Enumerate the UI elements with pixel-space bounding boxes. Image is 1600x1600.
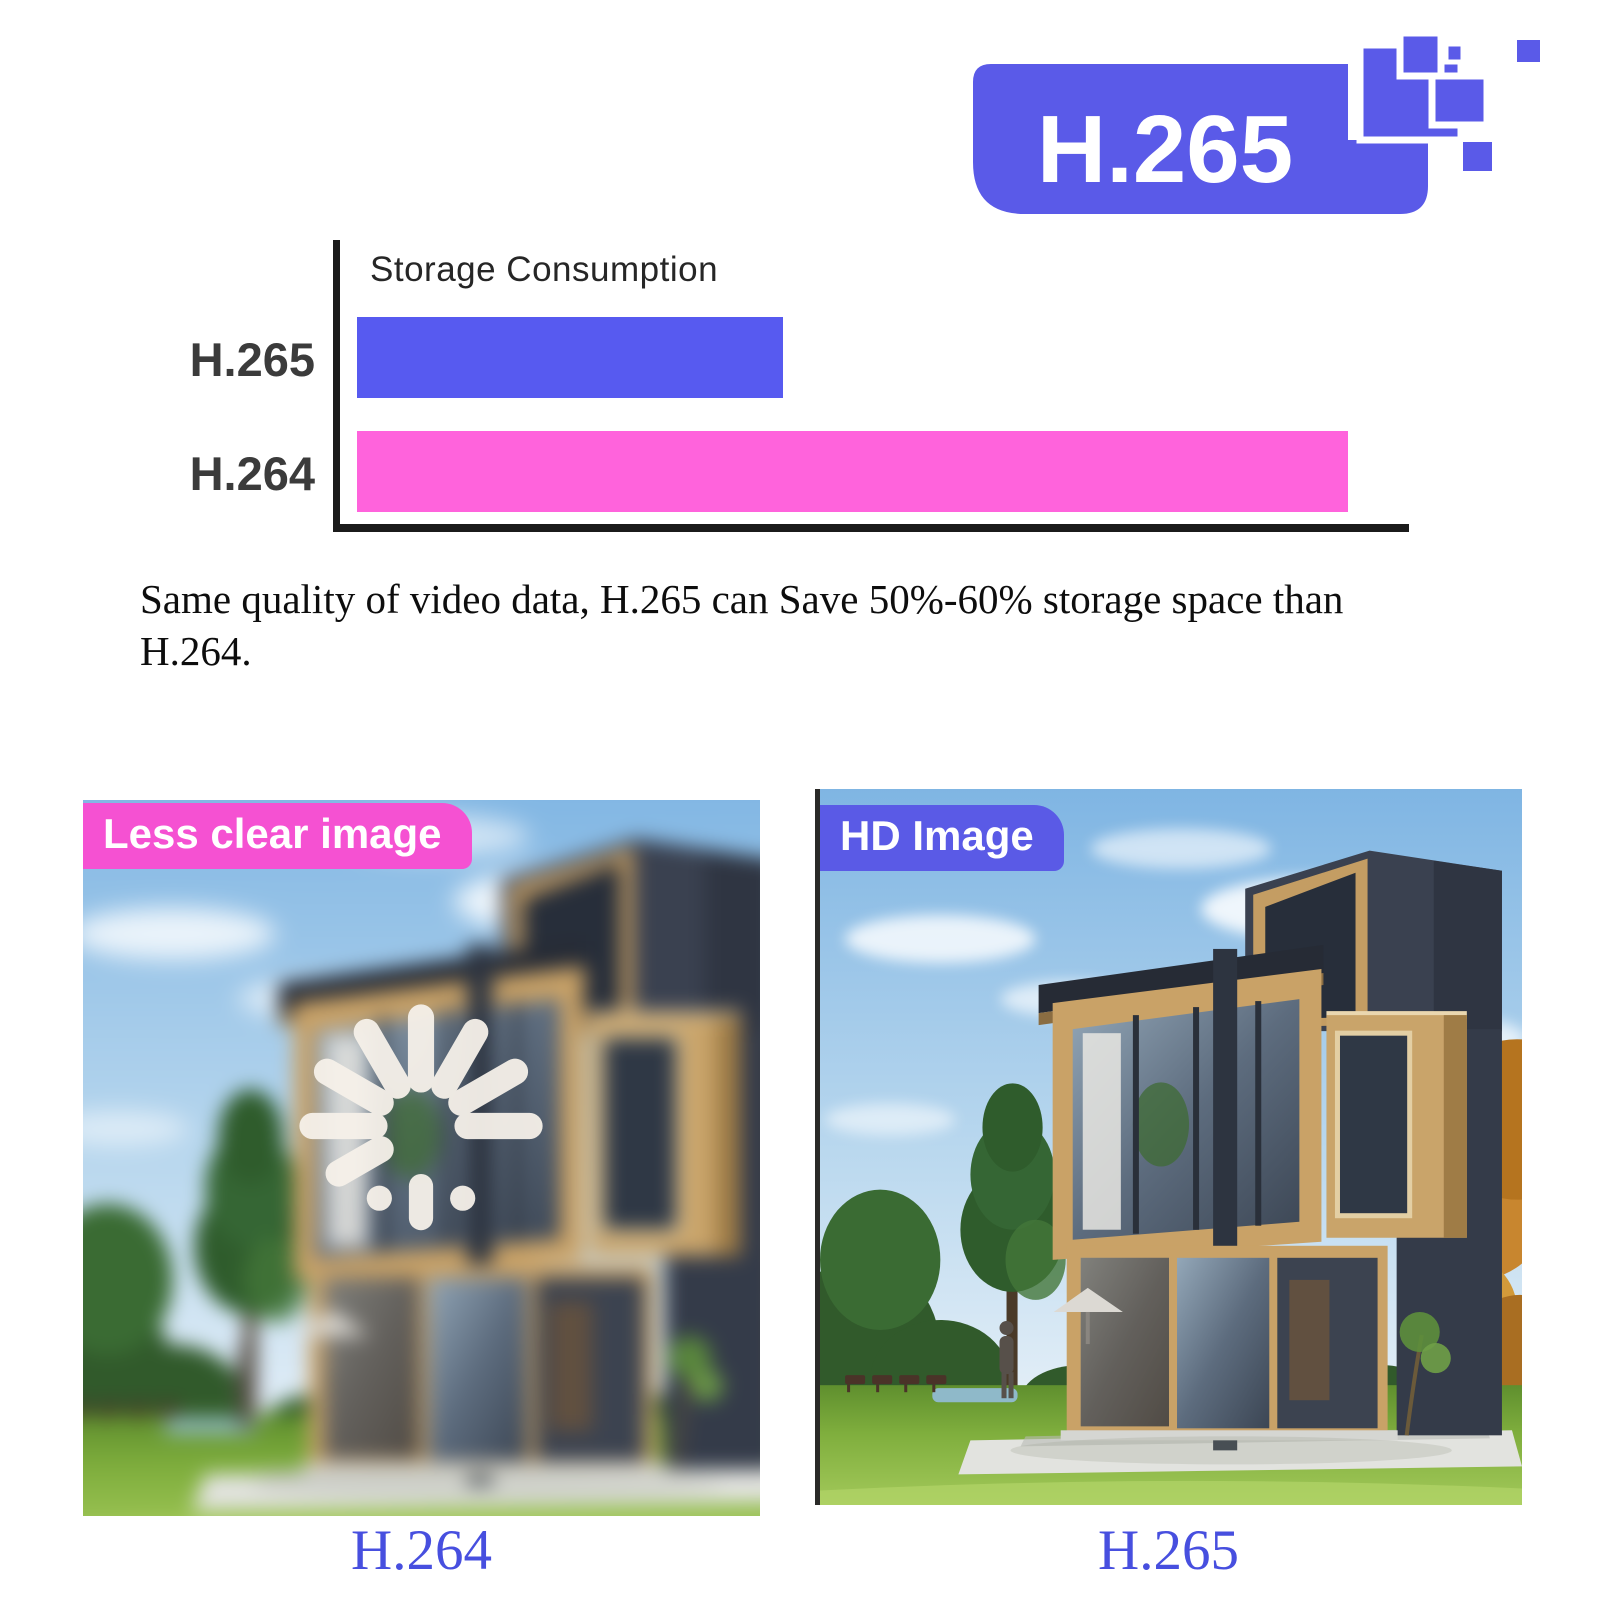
page: H.265 Storage Consumption H.265 H.264 Sa… bbox=[0, 0, 1600, 1600]
pixel-blocks-icon: H.265 bbox=[965, 30, 1565, 240]
h265-logo: H.265 bbox=[965, 30, 1565, 240]
loading-spinner-icon bbox=[295, 1000, 547, 1252]
caption-h264: H.264 bbox=[83, 1518, 760, 1583]
bar-label-h265: H.265 bbox=[165, 332, 315, 387]
h264-photo: Less clear image bbox=[83, 800, 760, 1516]
h265-photo: HD Image bbox=[815, 789, 1522, 1505]
chart-y-axis bbox=[333, 240, 340, 532]
bar-h264 bbox=[357, 431, 1348, 512]
chart-x-axis bbox=[333, 524, 1409, 532]
bar-label-h264: H.264 bbox=[165, 446, 315, 501]
chart-title: Storage Consumption bbox=[370, 250, 718, 290]
hd-house-photo bbox=[820, 789, 1522, 1505]
bar-h265 bbox=[357, 317, 783, 398]
description-text: Same quality of video data, H.265 can Sa… bbox=[140, 573, 1440, 677]
description-line-1: Same quality of video data, H.265 can Sa… bbox=[140, 573, 1440, 625]
caption-h265: H.265 bbox=[815, 1518, 1522, 1583]
less-clear-badge: Less clear image bbox=[83, 803, 472, 869]
description-line-2: H.264. bbox=[140, 625, 1440, 677]
logo-label: H.265 bbox=[1037, 96, 1293, 203]
hd-badge: HD Image bbox=[820, 805, 1064, 871]
